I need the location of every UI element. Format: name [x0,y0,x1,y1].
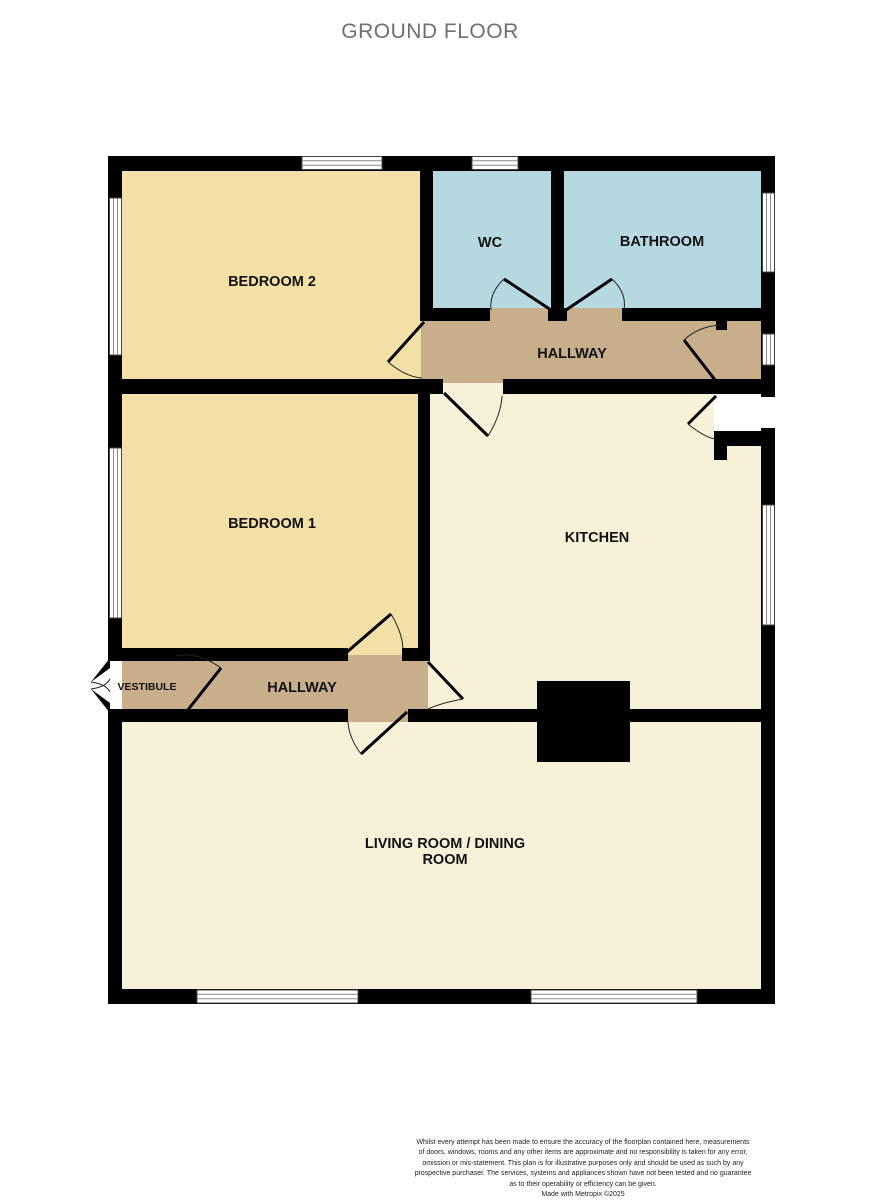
disclaimer-line: prospective purchaser. The services, sys… [383,1169,783,1179]
floorplan-canvas: BEDROOM 2 WC BATHROOM HALLWAY BEDROOM 1 … [0,0,886,1196]
room-label-hallway-top: HALLWAY [537,346,607,362]
window [763,334,775,365]
window [531,990,697,1003]
room-label-wc: WC [478,235,503,251]
disclaimer-line: omission or mis-statement. This plan is … [383,1159,783,1169]
wall-segment [622,308,775,321]
window [302,157,382,170]
wall-segment [108,156,775,171]
chimney-breast [537,681,630,762]
room-label-bathroom: BATHROOM [620,234,704,250]
disclaimer-line: of doors, windows, rooms and any other i… [383,1148,783,1158]
room-label-vestibule: VESTIBULE [118,681,177,693]
wall-segment [503,379,775,394]
room-label-hallway-lower: HALLWAY [267,680,337,696]
window [763,193,775,272]
window [763,505,775,625]
window [110,448,122,618]
wall-segment [402,648,430,661]
door-front-entrance [91,658,110,713]
room-label-kitchen: KITCHEN [565,530,629,546]
wall-segment [108,709,348,722]
window [472,157,518,170]
wall-segment [420,308,490,321]
disclaimer-line: Whilst every attempt has been made to en… [383,1138,783,1148]
wall-segment [420,170,433,318]
disclaimer-line: as to their operability or efficiency ca… [383,1180,783,1190]
wall-segment [714,431,727,460]
wall-segment [108,648,348,661]
room-label-bedroom-2: BEDROOM 2 [228,274,316,290]
room-label-living-line2: ROOM [422,852,467,868]
window [110,198,122,355]
disclaimer: Whilst every attempt has been made to en… [383,1138,783,1200]
wall-segment [716,308,727,330]
wall-segment [551,170,564,321]
room-label-living-line1: LIVING ROOM / DINING [365,836,525,852]
wall-segment [108,712,122,1004]
metropix-credit: Made with Metropix ©2025 [383,1190,783,1200]
wall-segment [108,379,443,394]
window [197,990,358,1003]
wall-segment [418,392,430,661]
room-label-bedroom-1: BEDROOM 1 [228,516,316,532]
